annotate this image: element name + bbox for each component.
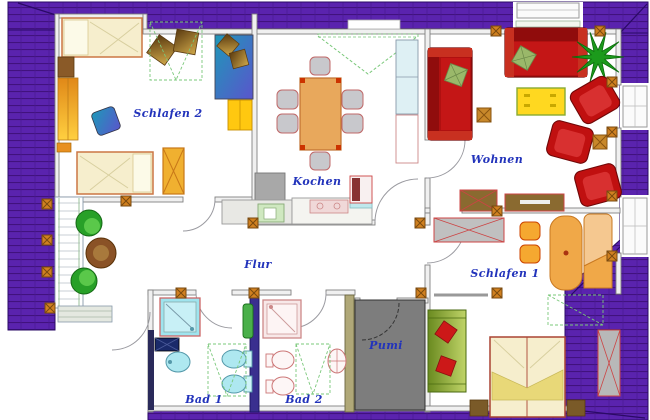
door-terrace <box>112 312 150 350</box>
oven-unit <box>350 176 372 203</box>
label-kochen: Kochen <box>292 175 342 188</box>
toilet <box>266 351 294 369</box>
right-dormer-window-2 <box>620 195 650 257</box>
desk-blue <box>215 34 253 99</box>
wall <box>425 208 430 213</box>
wardrobe <box>58 57 78 140</box>
door-kochen <box>375 179 418 222</box>
chair-blue <box>91 106 122 137</box>
terrace-railing <box>58 306 112 322</box>
sofa-green <box>428 310 466 392</box>
post <box>492 206 502 216</box>
post <box>595 26 605 36</box>
post <box>42 267 52 277</box>
label-wohnen: Wohnen <box>471 153 523 166</box>
desk-rounded <box>550 216 582 290</box>
double-bed <box>490 337 565 417</box>
nightstand <box>470 400 488 416</box>
label-bad-2: Bad 2 <box>284 393 323 406</box>
post <box>176 288 186 298</box>
floor-plan-page: Schlafen 2 Kochen Wohnen Flur Schlafen 1… <box>0 0 650 420</box>
storage-room-floor <box>355 300 425 410</box>
post <box>121 196 131 206</box>
chair-green <box>76 210 102 236</box>
post <box>607 77 617 87</box>
label-pumi: Pumi <box>368 339 403 352</box>
bed-2 <box>77 152 153 194</box>
post <box>45 303 55 313</box>
room-wohnen <box>428 28 624 211</box>
dining-table <box>300 78 341 150</box>
door-schlafen2 <box>183 199 215 231</box>
closet-yellow <box>163 148 184 194</box>
post <box>42 199 52 209</box>
right-dormer-window-1 <box>620 83 650 130</box>
post <box>248 218 258 228</box>
door-bad1 <box>196 292 232 328</box>
cabinet-dark <box>155 338 179 351</box>
wall <box>326 290 355 295</box>
label-bad-1: Bad 1 <box>184 393 223 406</box>
post <box>607 127 617 137</box>
post <box>415 218 425 228</box>
post <box>416 288 426 298</box>
post <box>607 191 617 201</box>
wall <box>425 213 430 225</box>
floor-plan-svg: Schlafen 2 Kochen Wohnen Flur Schlafen 1… <box>0 0 650 420</box>
cabinet-strip <box>148 330 154 410</box>
chair-green <box>71 268 97 294</box>
label-schlafen-2: Schlafen 2 <box>133 107 202 120</box>
post <box>42 235 52 245</box>
post <box>492 288 502 298</box>
side-table <box>593 135 607 149</box>
shower <box>263 300 301 338</box>
nightstand <box>567 400 585 416</box>
wall <box>232 290 291 295</box>
armchair <box>173 29 198 54</box>
round-table <box>86 238 116 268</box>
sofa-left <box>428 48 472 140</box>
chair-orange <box>520 245 540 263</box>
chair-orange <box>520 222 540 240</box>
nightstand <box>57 143 71 152</box>
eaves-wardrobe <box>598 330 620 396</box>
stove <box>255 173 285 201</box>
wall-flur-bad1 <box>148 290 196 295</box>
cabinet-green <box>243 304 253 338</box>
post <box>491 26 501 36</box>
armchair-red <box>545 119 595 165</box>
room-pumi <box>355 300 425 410</box>
roof-left-band <box>8 30 55 330</box>
planned-outline <box>296 344 330 394</box>
toilet <box>222 350 252 368</box>
side-table <box>477 108 491 122</box>
wardrobe-gray <box>434 218 504 242</box>
wall-bad2-pumi <box>345 295 354 412</box>
armchair <box>147 35 178 66</box>
label-schlafen-1: Schlafen 1 <box>470 267 539 280</box>
bed <box>62 18 142 57</box>
post <box>607 251 617 261</box>
door-wohnen <box>427 140 465 178</box>
coffee-table <box>517 88 565 115</box>
label-flur: Flur <box>243 258 272 271</box>
post <box>249 288 259 298</box>
washbasin <box>166 352 190 372</box>
bidet <box>222 375 252 393</box>
sideboard <box>460 190 497 211</box>
shower <box>160 298 200 336</box>
sofa-top <box>505 28 587 77</box>
nightstand-yellow <box>228 100 252 130</box>
room-schlafen-2 <box>57 18 253 194</box>
washbasin <box>328 349 346 373</box>
fridge-cabinet <box>396 40 418 163</box>
lowboard <box>505 194 564 211</box>
